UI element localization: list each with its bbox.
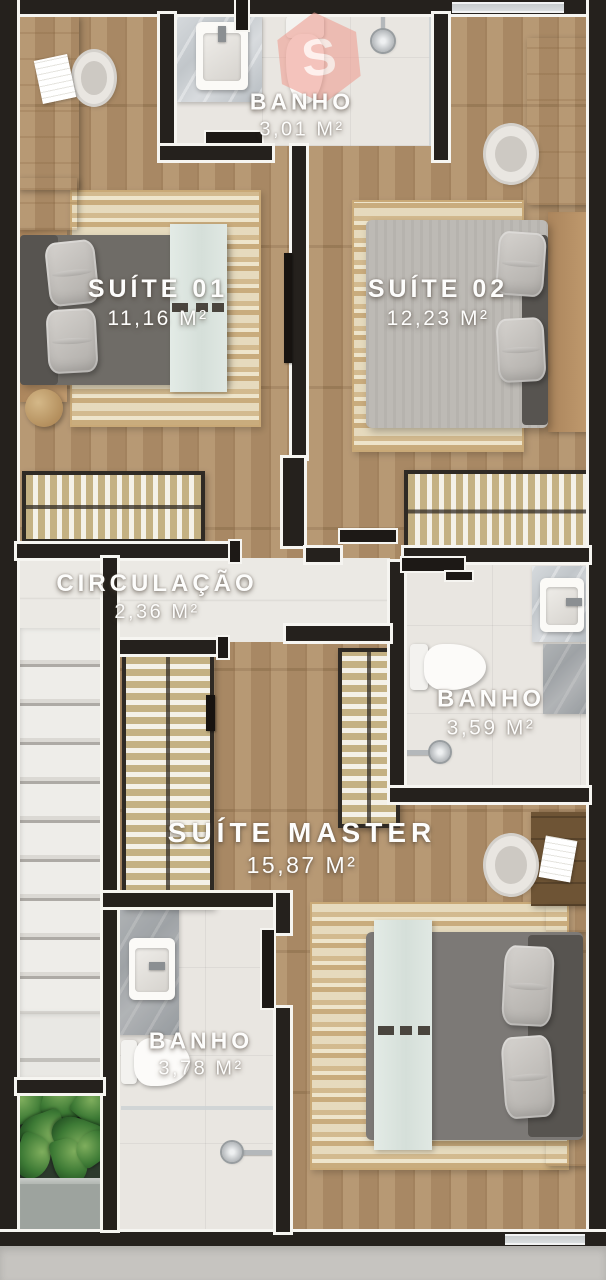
room-label-banho-inferior: BANHO 3,78 M²	[149, 1028, 253, 1081]
room-name: BANHO	[437, 686, 545, 714]
room-name: CIRCULAÇÃO	[56, 570, 257, 598]
room-label-suite-01: SUÍTE 01 11,16 M²	[88, 275, 228, 331]
suite01-wardrobe	[22, 471, 205, 543]
master-nightstand	[546, 1140, 586, 1166]
room-label-banho-meio: BANHO 3,59 M²	[437, 686, 545, 741]
bath-mid-wall-bottom	[390, 788, 589, 802]
suite02-wardrobe	[404, 470, 592, 553]
suite02-circulation-wall-a	[306, 548, 340, 562]
suite01-desk	[17, 16, 79, 190]
planter	[17, 1178, 103, 1232]
bath-mid-door-leaf	[402, 558, 464, 571]
room-name: SUÍTE 01	[88, 275, 228, 304]
bath-bottom-faucet	[149, 962, 165, 970]
bath-top-wall-bottom	[160, 146, 272, 160]
master-tv	[206, 695, 215, 731]
suite02-desk	[527, 38, 589, 205]
room-name: SUÍTE MASTER	[168, 817, 436, 849]
room-label-suite-master: SUÍTE MASTER 15,87 M²	[168, 817, 436, 879]
suites-divider-wall	[292, 146, 306, 458]
stair-landing	[17, 1014, 103, 1080]
bath-mid-wall-panel	[543, 644, 589, 714]
runner-seam	[400, 1026, 412, 1035]
runner-seam	[378, 1026, 394, 1035]
window-top	[452, 2, 564, 13]
room-area: 3,59 M²	[437, 717, 545, 741]
bath-mid-toilet	[410, 644, 486, 690]
exterior-ground	[0, 1246, 606, 1280]
room-name: SUÍTE 02	[368, 275, 508, 304]
master-wall-top-a	[103, 640, 218, 654]
master-pillow	[501, 945, 555, 1028]
runner-seam	[418, 1026, 430, 1035]
master-bed-runner	[374, 920, 432, 1150]
bath-top-faucet	[218, 26, 226, 42]
bath-bottom-wall-top	[103, 893, 290, 907]
bath-bottom-shower-glass	[121, 1106, 276, 1110]
staircase	[17, 628, 103, 1014]
suite01-circulation-wall	[17, 544, 230, 558]
door-jamb	[236, 0, 248, 30]
bath-bottom-door-leaf	[262, 930, 274, 1008]
master-wall-top-b	[286, 626, 390, 641]
master-pillow	[500, 1034, 556, 1119]
room-area: 11,16 M²	[88, 307, 228, 331]
bath-top-shower-glass	[429, 14, 433, 146]
bath-mid-wall-left	[390, 562, 404, 802]
room-name: BANHO	[149, 1028, 253, 1055]
suite01-nightstand	[17, 178, 77, 230]
room-name: BANHO	[250, 89, 354, 116]
bath-top-shower-head	[372, 30, 394, 52]
master-nightstand	[546, 906, 586, 932]
door-jamb	[218, 637, 228, 658]
suite01-tv	[284, 253, 292, 363]
bath-bottom-wall-right-b	[276, 1008, 290, 1232]
room-area: 3,78 M²	[149, 1058, 253, 1081]
suite01-desk-chair	[74, 52, 114, 104]
floor-plan: S BANHO 3,01 M² SUÍTE 01 11,16 M² SUÍTE …	[0, 0, 606, 1280]
room-area: 15,87 M²	[168, 852, 436, 879]
door-jamb	[446, 572, 472, 580]
room-area: 12,23 M²	[368, 307, 508, 331]
bath-bottom-wall-right-a	[276, 893, 290, 933]
outer-wall-right	[589, 0, 606, 1246]
room-area: 2,36 M²	[56, 601, 257, 624]
bath-bottom-shower-head	[222, 1142, 242, 1162]
door-jamb	[230, 541, 240, 562]
bath-mid-shower-head	[430, 742, 450, 762]
suite02-door-leaf	[340, 530, 396, 542]
room-area: 3,01 M²	[250, 119, 354, 142]
master-desk-chair	[486, 836, 536, 894]
room-label-banho-superior: BANHO 3,01 M²	[250, 89, 354, 142]
brand-watermark-letter: S	[299, 26, 340, 89]
window-bottom	[505, 1234, 585, 1245]
bath-mid-faucet	[566, 598, 582, 606]
suite02-headboard	[548, 212, 589, 432]
suites-divider-wall-stub	[283, 458, 304, 546]
bath-top-wall-left	[160, 14, 174, 160]
plant-divider-wall	[17, 1080, 103, 1093]
outer-wall-left	[0, 0, 17, 1246]
suite01-stool	[25, 389, 63, 427]
plant	[17, 1092, 103, 1178]
suite02-desk-chair	[486, 126, 536, 182]
room-label-circulacao: CIRCULAÇÃO 2,36 M²	[56, 570, 257, 624]
bath-top-wall-right	[434, 14, 448, 160]
room-label-suite-02: SUÍTE 02 12,23 M²	[368, 275, 508, 331]
